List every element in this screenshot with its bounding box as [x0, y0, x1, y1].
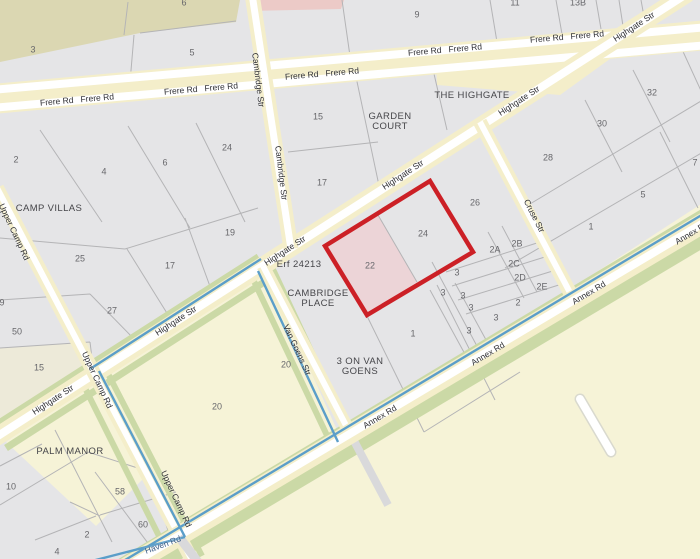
parcel-number-label: 11 — [510, 0, 519, 8]
parcel-number-label: 2 — [13, 155, 18, 164]
road-name-label: Cambridge Str — [273, 145, 289, 200]
parcel-number-label: 2C — [508, 259, 520, 268]
parcel-number-label: 17 — [317, 178, 327, 187]
road-name-label: Annex Rd — [571, 280, 608, 307]
parcel-number-label: 2A — [489, 245, 500, 254]
parcel-number-label: 58 — [115, 487, 125, 496]
parcel-number-label: 60 — [138, 520, 148, 529]
road-name-label: Annex Rd — [470, 341, 507, 368]
area-name-label: Erf 24213 — [277, 260, 322, 270]
parcel-number-label: 22 — [365, 261, 375, 270]
parcel-number-label: 5 — [189, 48, 194, 57]
road-name-label: Upper Camp Rd — [80, 350, 114, 409]
road-name-label: Highgate Str — [381, 158, 425, 191]
parcel-number-label: 9 — [414, 10, 419, 19]
parcel-number-label: 2D — [514, 273, 526, 282]
road-name-label: Highgate Str — [154, 304, 198, 337]
road-name-label: Frere Rd Frere Rd — [164, 81, 239, 96]
road-name-label: Frere Rd Frere Rd — [408, 42, 483, 57]
area-name-label: CAMP VILLAS — [16, 204, 83, 214]
parcel-number-label: 1 — [588, 222, 593, 231]
parcel-number-label: 4 — [101, 167, 106, 176]
area-name-label: GOENS — [342, 367, 378, 377]
parcel-number-label: 3 — [440, 288, 445, 297]
road-name-label: Highgate Str — [31, 383, 75, 416]
parcel-number-label: 15 — [34, 363, 44, 372]
parcel-number-label: 17 — [165, 261, 175, 270]
road-name-label: Haven Rd — [144, 534, 183, 555]
parcel-number-label: 26 — [470, 198, 480, 207]
parcel-number-label: 19 — [225, 228, 235, 237]
area-name-label: PLACE — [301, 299, 334, 309]
parcel-number-label: 2E — [536, 282, 547, 291]
parcel-number-label: 2B — [511, 239, 522, 248]
parcel-number-label: 10 — [6, 482, 16, 491]
parcel-number-label: 24 — [222, 143, 232, 152]
parcel-number-label: 25 — [75, 254, 85, 263]
parcel-number-label: 27 — [107, 306, 117, 315]
parcel-number-label: 3 — [30, 45, 35, 54]
parcel-number-label: 9 — [0, 298, 5, 307]
parcel-number-label: 28 — [543, 153, 553, 162]
road-name-label: Cambridge Str — [250, 52, 266, 107]
parcel-number-label: 50 — [12, 327, 22, 336]
parcel-number-label: 6 — [162, 158, 167, 167]
parcel-number-label: 3 — [468, 303, 473, 312]
map-canvas[interactable]: 36591113B1517246242517192750915202022242… — [0, 0, 700, 559]
area-name-label: PALM MANOR — [36, 447, 103, 457]
parcel-number-label: 2 — [84, 530, 89, 539]
area-name-label: THE HIGHGATE — [434, 91, 509, 101]
road-name-label: Annex Rd — [362, 404, 399, 431]
parcel-number-label: 30 — [597, 119, 607, 128]
parcel-number-label: 3 — [454, 268, 459, 277]
parcel-number-label: 3 — [460, 291, 465, 300]
parcel-number-label: 24 — [418, 229, 428, 238]
parcel-number-label: 2 — [515, 298, 520, 307]
parcel-number-label: 6 — [181, 0, 186, 8]
road-name-label: Frere Rd Frere Rd — [530, 29, 605, 44]
road-name-label: Frere Rd Frere Rd — [40, 92, 115, 107]
parcel-number-label: 32 — [647, 88, 657, 97]
parcel-number-label: 3 — [493, 313, 498, 322]
road-name-label: Annex Rd — [674, 220, 700, 247]
road-name-label: Highgate Str — [612, 10, 656, 43]
parcel-number-label: 1 — [410, 329, 415, 338]
area-name-label: COURT — [372, 122, 408, 132]
road-name-label: Frere Rd Frere Rd — [285, 66, 360, 81]
parcel-number-label: 13B — [570, 0, 586, 8]
road-name-label: Cruse Str — [522, 198, 546, 234]
parcel-number-label: 7 — [692, 158, 697, 167]
parcel-number-label: 5 — [640, 190, 645, 199]
parcel-number-label: 20 — [212, 402, 222, 411]
parcel-number-label: 4 — [54, 547, 59, 556]
map-labels-layer: 36591113B1517246242517192750915202022242… — [0, 0, 700, 559]
parcel-number-label: 20 — [281, 360, 291, 369]
road-name-label: Upper Camp Rd — [159, 469, 193, 528]
parcel-number-label: 15 — [313, 112, 323, 121]
parcel-number-label: 3 — [466, 326, 471, 335]
